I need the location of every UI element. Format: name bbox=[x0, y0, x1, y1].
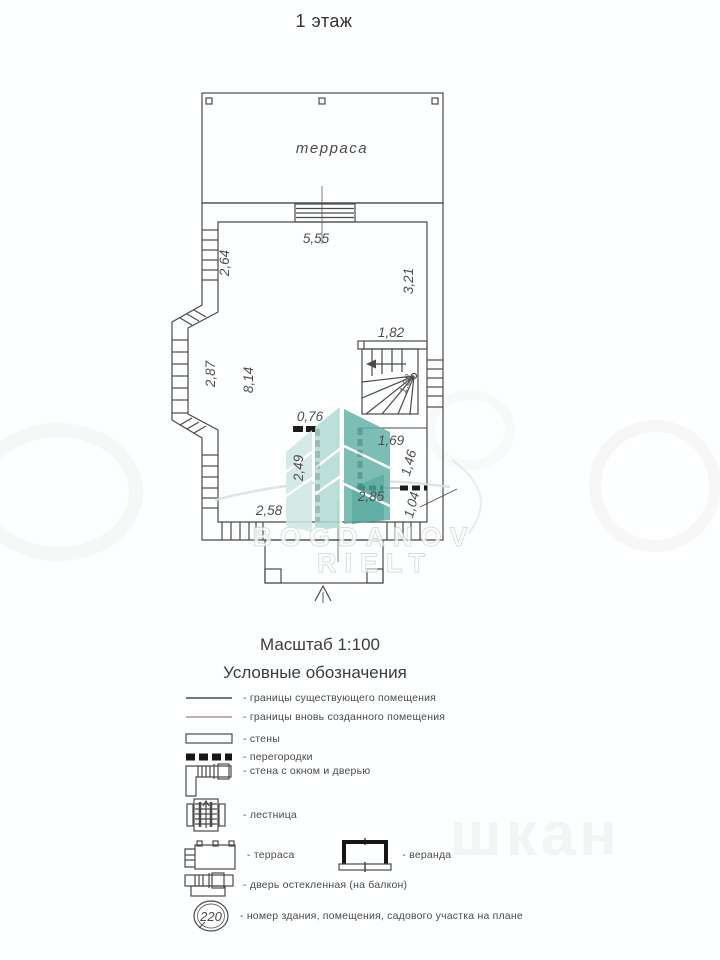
dim-bath-depth: 1,46 bbox=[398, 448, 419, 478]
veranda-icon bbox=[334, 836, 394, 874]
dim-bath-width: 1,69 bbox=[378, 433, 405, 448]
terrace-label: терраса bbox=[296, 140, 368, 157]
glazed-door-icon bbox=[183, 870, 235, 900]
window-left-upper bbox=[202, 230, 218, 280]
legend-label: - перегородки bbox=[243, 751, 313, 763]
new-boundary-line-icon bbox=[183, 709, 235, 725]
number-badge-icon: 220 bbox=[190, 898, 232, 934]
dim-stair-opening: 1,82 bbox=[378, 325, 405, 340]
walls-icon bbox=[183, 730, 235, 748]
legend-label: - стены bbox=[243, 733, 280, 745]
window-bay-front bbox=[172, 340, 188, 413]
leader-line bbox=[420, 489, 457, 507]
staircase bbox=[358, 341, 427, 414]
legend-row-glazed-door: - дверь остекленная (на балкон) bbox=[183, 870, 407, 900]
wall-window-door-icon bbox=[183, 763, 235, 799]
legend-row-number-badge: 220 - номер здания, помещения, садового … bbox=[190, 898, 523, 934]
dim-room-depth: 8,14 bbox=[241, 367, 256, 393]
floor-plan-page: 1 этаж bbox=[0, 0, 720, 960]
legend-label: - стена с окном и дверью bbox=[243, 765, 370, 777]
dim-top-width: 5,55 bbox=[303, 231, 330, 246]
stairs-icon bbox=[183, 796, 235, 834]
legend-label: - веранда bbox=[402, 849, 451, 861]
legend-row-terrace-veranda: - терраса - веранда bbox=[183, 836, 451, 874]
existing-boundary-line-icon bbox=[183, 690, 235, 706]
legend-row-existing-boundary: - границы существующего помещения bbox=[183, 690, 436, 706]
dim-bath-niche: 1,04 bbox=[401, 490, 422, 519]
legend-row-stairs: - лестница bbox=[183, 796, 297, 834]
terrace-icon bbox=[183, 837, 239, 873]
legend-title: Условные обозначения bbox=[0, 663, 630, 683]
dim-bay-window: 2,87 bbox=[203, 360, 218, 388]
dim-partition-length: 2,49 bbox=[291, 454, 306, 482]
dim-bottom-left: 2,58 bbox=[255, 503, 283, 518]
dim-bath-bottom: 2,85 bbox=[357, 489, 385, 504]
legend-label: - терраса bbox=[247, 849, 294, 861]
dim-left-upper: 2,64 bbox=[217, 250, 232, 277]
terrace-posts bbox=[206, 98, 438, 104]
scale-label: Масштаб 1:100 bbox=[0, 635, 640, 655]
window-bay-lower-angle bbox=[180, 418, 206, 433]
legend-row-wall-window-door: - стена с окном и дверью bbox=[183, 763, 370, 799]
faint-watermark-fragment: шкан bbox=[430, 770, 720, 880]
legend-label: - границы вновь созданного помещения bbox=[243, 711, 445, 723]
legend-label: - лестница bbox=[243, 809, 297, 821]
terrace-steps bbox=[295, 204, 355, 222]
legend-row-walls: - стены bbox=[183, 730, 280, 748]
window-bay-upper-angle bbox=[180, 310, 206, 325]
legend-label: - дверь остекленная (на балкон) bbox=[243, 879, 407, 891]
floor-plan-drawing: BOGDANOV RIELT терраса 5,55 2,64 3,21 1,… bbox=[0, 0, 720, 630]
badge-number: 220 bbox=[199, 909, 222, 924]
watermark-text-line2: RIELT bbox=[317, 548, 433, 578]
dim-partition-stub: 0,76 bbox=[297, 409, 324, 424]
watermark-fragment-text: шкан bbox=[450, 800, 621, 869]
legend-row-new-boundary: - границы вновь созданного помещения bbox=[183, 709, 445, 725]
legend-label: - границы существующего помещения bbox=[243, 692, 436, 704]
legend-label: - номер здания, помещения, садового учас… bbox=[240, 910, 523, 922]
dim-right-wall: 3,21 bbox=[401, 268, 416, 294]
agency-watermark: BOGDANOV RIELT bbox=[215, 406, 481, 578]
